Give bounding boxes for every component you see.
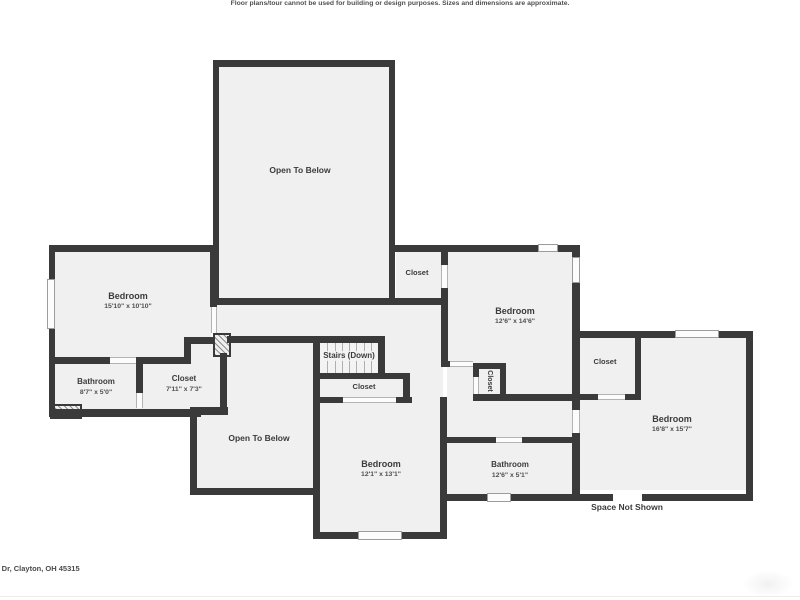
room-label-bedroom-east: Bedroom16'8" x 15'7": [652, 414, 692, 434]
room-name: Closet: [353, 382, 376, 392]
wall: [572, 245, 580, 500]
wall: [473, 394, 577, 401]
wall: [389, 60, 395, 305]
room-dimensions: 12'6" x 14'6": [495, 317, 535, 326]
room-name: Bathroom: [77, 377, 115, 387]
room-label-closet-top: Closet: [406, 268, 429, 278]
wall: [440, 397, 447, 539]
room-label-bedroom-south: Bedroom12'1" x 13'1": [361, 459, 401, 479]
room-dimensions: 16'8" x 15'7": [652, 425, 692, 434]
room-name: Closet: [484, 370, 494, 391]
wall: [313, 373, 410, 379]
wall: [441, 361, 450, 367]
wall: [49, 245, 55, 417]
wall: [441, 288, 448, 367]
room-label-closet-mid: Closet: [353, 382, 376, 392]
wall: [572, 331, 753, 338]
wall: [522, 437, 577, 443]
room-label-closet-east: Closet: [594, 357, 617, 367]
door-opening: [598, 394, 625, 400]
room-name: Open To Below: [269, 165, 330, 175]
room-dimensions: 7'11" x 7'3": [166, 385, 202, 394]
room-label-open-to-below-main: Open To Below: [269, 165, 330, 175]
room-label-open-to-below-second: Open To Below: [228, 433, 289, 443]
wall: [184, 337, 213, 344]
wall: [445, 437, 496, 443]
wall: [441, 249, 448, 265]
footer-divider: [0, 596, 800, 597]
wall: [49, 357, 110, 364]
room-dimensions: 12'6" x 5'1": [491, 471, 529, 480]
door-opening: [473, 377, 479, 394]
wall: [136, 364, 143, 394]
wall: [313, 336, 320, 539]
room-name: Stairs (Down): [321, 351, 377, 361]
room-name: Bedroom: [361, 459, 401, 469]
room-label-bathroom-left: Bathroom8'7" x 5'0": [77, 377, 115, 397]
room-label-bedroom-left: Bedroom15'10" x 10'10": [104, 291, 151, 311]
watermark: [742, 570, 794, 598]
floor-area: [219, 66, 390, 299]
room-label-stairs: Stairs (Down): [321, 351, 377, 361]
window: [572, 257, 580, 283]
room-dimensions: 15'10" x 10'10": [104, 302, 151, 311]
room-label-bathroom-mid: Bathroom12'6" x 5'1": [491, 460, 529, 480]
wall: [746, 331, 753, 501]
room-name: Bedroom: [495, 306, 535, 316]
door-opening: [572, 410, 580, 433]
wall: [473, 363, 479, 377]
room-label-closet-left: Closet7'11" x 7'3": [166, 374, 202, 394]
door-opening: [496, 437, 522, 443]
window: [538, 244, 558, 252]
room-name: Closet: [166, 374, 202, 384]
wall: [625, 394, 641, 400]
window: [675, 330, 719, 338]
wall: [313, 397, 343, 403]
door-opening: [343, 397, 396, 403]
wall: [213, 298, 448, 305]
room-dimensions: 8'7" x 5'0": [77, 388, 115, 397]
floor-area: [197, 343, 313, 489]
door-opening: [441, 265, 448, 288]
door-opening: [211, 307, 217, 333]
wall: [227, 336, 385, 343]
room-label-space-not-shown: Space Not Shown: [591, 502, 663, 512]
wall: [190, 488, 317, 495]
room-label-bedroom-northeast: Bedroom12'6" x 14'6": [495, 306, 535, 326]
room-name: Open To Below: [228, 433, 289, 443]
window: [358, 531, 402, 540]
window: [47, 279, 55, 329]
wall: [220, 353, 227, 409]
room-name: Bathroom: [491, 460, 529, 470]
door-opening: [450, 361, 473, 367]
room-name: Bedroom: [104, 291, 151, 301]
wall: [396, 397, 412, 403]
address-text: n Dr, Clayton, OH 45315: [0, 564, 80, 573]
wall: [190, 409, 197, 495]
wall: [213, 60, 395, 67]
room-dimensions: 12'1" x 13'1": [361, 470, 401, 479]
window: [487, 493, 511, 502]
wall: [575, 394, 598, 400]
wall: [210, 245, 217, 307]
room-name: Closet: [406, 268, 429, 278]
room-name: Space Not Shown: [591, 502, 663, 512]
floor-plan: Bedroom15'10" x 10'10"Bathroom8'7" x 5'0…: [0, 0, 800, 600]
floor-area: [447, 369, 572, 437]
wall: [635, 338, 641, 400]
wall: [49, 409, 201, 417]
room-label-closet-small: Closet: [484, 370, 494, 391]
door-opening: [110, 357, 136, 364]
room-name: Bedroom: [652, 414, 692, 424]
wall: [136, 357, 191, 364]
room-name: Closet: [594, 357, 617, 367]
door-opening: [136, 393, 143, 408]
door-opening: [613, 494, 642, 501]
wall: [49, 245, 217, 252]
